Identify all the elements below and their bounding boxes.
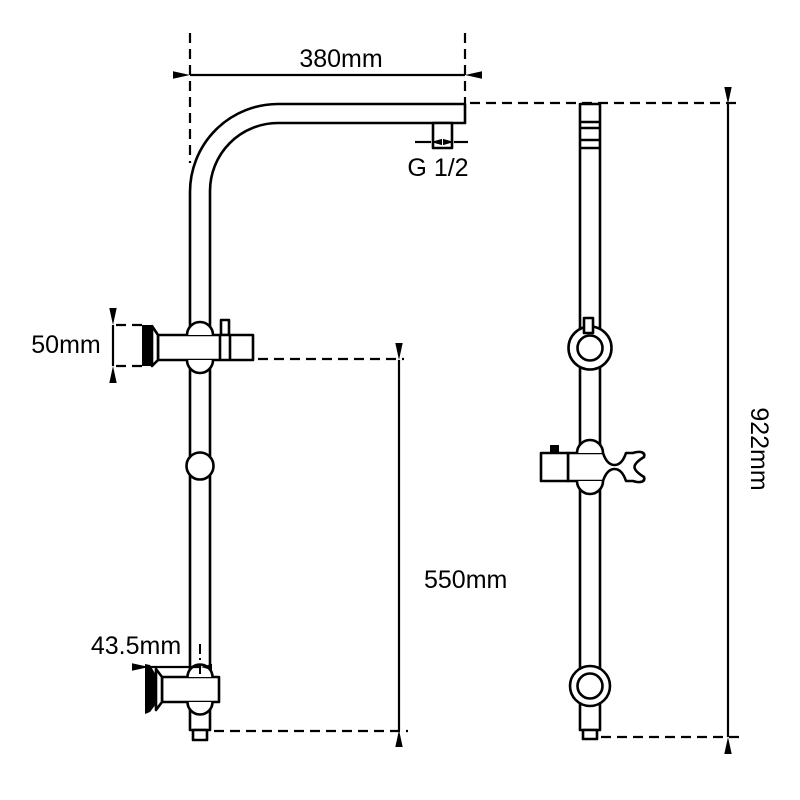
dimension-label-922: 922mm [745, 407, 773, 490]
side-view: 922mm [470, 103, 773, 739]
bottom-bracket-wall-plate [145, 664, 156, 714]
dimension-bracket-height: 50mm [31, 325, 148, 366]
bottom-bracket-bar [162, 677, 219, 702]
top-wall-bracket [142, 320, 253, 373]
top-bracket-wall-plate [142, 325, 152, 366]
pipe-collar-bottom-bracket-lower [188, 702, 213, 715]
rail-side [580, 104, 600, 730]
dimension-arm-width: 380mm [190, 45, 465, 75]
top-bracket-tab [221, 320, 229, 335]
dimension-label-50: 50mm [31, 331, 100, 359]
front-view: 380mm G 1/2 50mm [31, 33, 507, 740]
slider-knob [187, 453, 214, 480]
top-bracket-flange [152, 326, 158, 366]
top-bracket-side [569, 318, 612, 370]
dimension-overall-height: 922mm [728, 104, 773, 737]
inlet-fitting: G 1/2 [407, 123, 468, 182]
handset-holder-cradle [568, 452, 644, 482]
bottom-outlet-front [193, 730, 207, 740]
inlet-thread-label: G 1/2 [407, 154, 468, 182]
handset-holder-screw [550, 445, 559, 453]
top-bracket-side-tab [584, 318, 593, 333]
bottom-bracket-side [570, 666, 610, 706]
bottom-bracket-side-inner [578, 674, 603, 699]
dimension-label-550: 550mm [424, 566, 507, 594]
drawing-canvas: 380mm G 1/2 50mm [0, 0, 800, 800]
bottom-outlet-side [583, 730, 597, 739]
handset-holder [541, 440, 644, 494]
shower-rail-diagram: 380mm G 1/2 50mm [0, 0, 800, 800]
dimension-label-43-5: 43.5mm [91, 632, 181, 660]
bottom-bracket-flange [156, 669, 162, 710]
dimension-label-380: 380mm [299, 45, 382, 73]
top-bracket-side-inner [578, 336, 603, 361]
inlet-fitting-body [433, 123, 452, 148]
arm-and-pipe [190, 104, 465, 730]
handset-holder-block [541, 453, 568, 481]
dimension-lower-span: 550mm [399, 360, 507, 730]
bottom-wall-bracket [145, 664, 219, 715]
top-bracket-bar [158, 335, 253, 360]
